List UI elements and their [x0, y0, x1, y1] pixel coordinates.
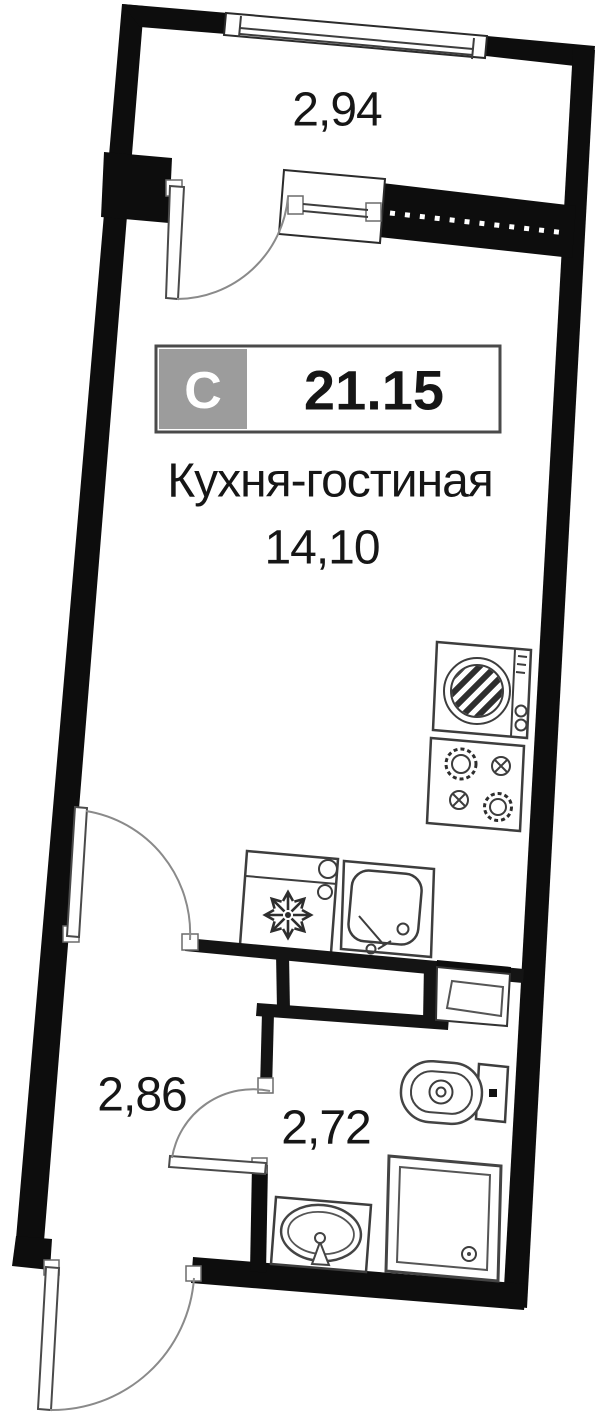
- hallway-area-label: 2,86: [97, 1069, 186, 1122]
- kitchen-door-icon: [63, 807, 198, 950]
- kitchen-living-zone: Кухня-гостиная 14,10: [167, 455, 531, 958]
- toilet-icon: [399, 1059, 508, 1126]
- balcony-window-unit-icon: [279, 170, 385, 243]
- shower-tray-icon: [386, 1156, 501, 1281]
- snowflake-icon: [265, 892, 311, 938]
- fridge-icon: [240, 851, 338, 953]
- hatched-wall: [379, 183, 576, 258]
- top-window-icon: [224, 13, 487, 59]
- balcony-door-icon: [166, 180, 288, 299]
- entrance-door-icon: [38, 1260, 201, 1410]
- floor-plan-page: 2,94 С 21.15 Кухня-гостиная 14,10: [0, 0, 600, 1417]
- bathroom-top-wall: [256, 1003, 449, 1030]
- kitchen-living-name-label: Кухня-гостиная: [167, 455, 493, 508]
- washbasin-icon: [271, 1197, 371, 1272]
- floor-plan-drawing: 2,94 С 21.15 Кухня-гостиная 14,10: [0, 0, 600, 1417]
- unit-badge: С 21.15: [156, 346, 500, 432]
- badge-total-area: 21.15: [304, 359, 444, 422]
- bathroom-area-label: 2,72: [281, 1102, 370, 1155]
- shaft-left-wall: [276, 953, 290, 1011]
- vent-shaft-icon: [436, 967, 510, 1026]
- washing-machine-icon: [433, 642, 531, 738]
- stove-icon: [427, 738, 524, 831]
- kitchen-sink-icon: [341, 861, 434, 957]
- bathroom-partition-lower: [250, 1164, 268, 1273]
- wall-pillar: [101, 152, 172, 223]
- bathroom-zone: 2,72: [169, 1059, 508, 1281]
- badge-type-letter: С: [184, 362, 222, 420]
- kitchen-living-area-label: 14,10: [264, 522, 379, 575]
- balcony-area-label: 2,94: [292, 84, 382, 137]
- hallway-zone: 2,86: [38, 1069, 201, 1411]
